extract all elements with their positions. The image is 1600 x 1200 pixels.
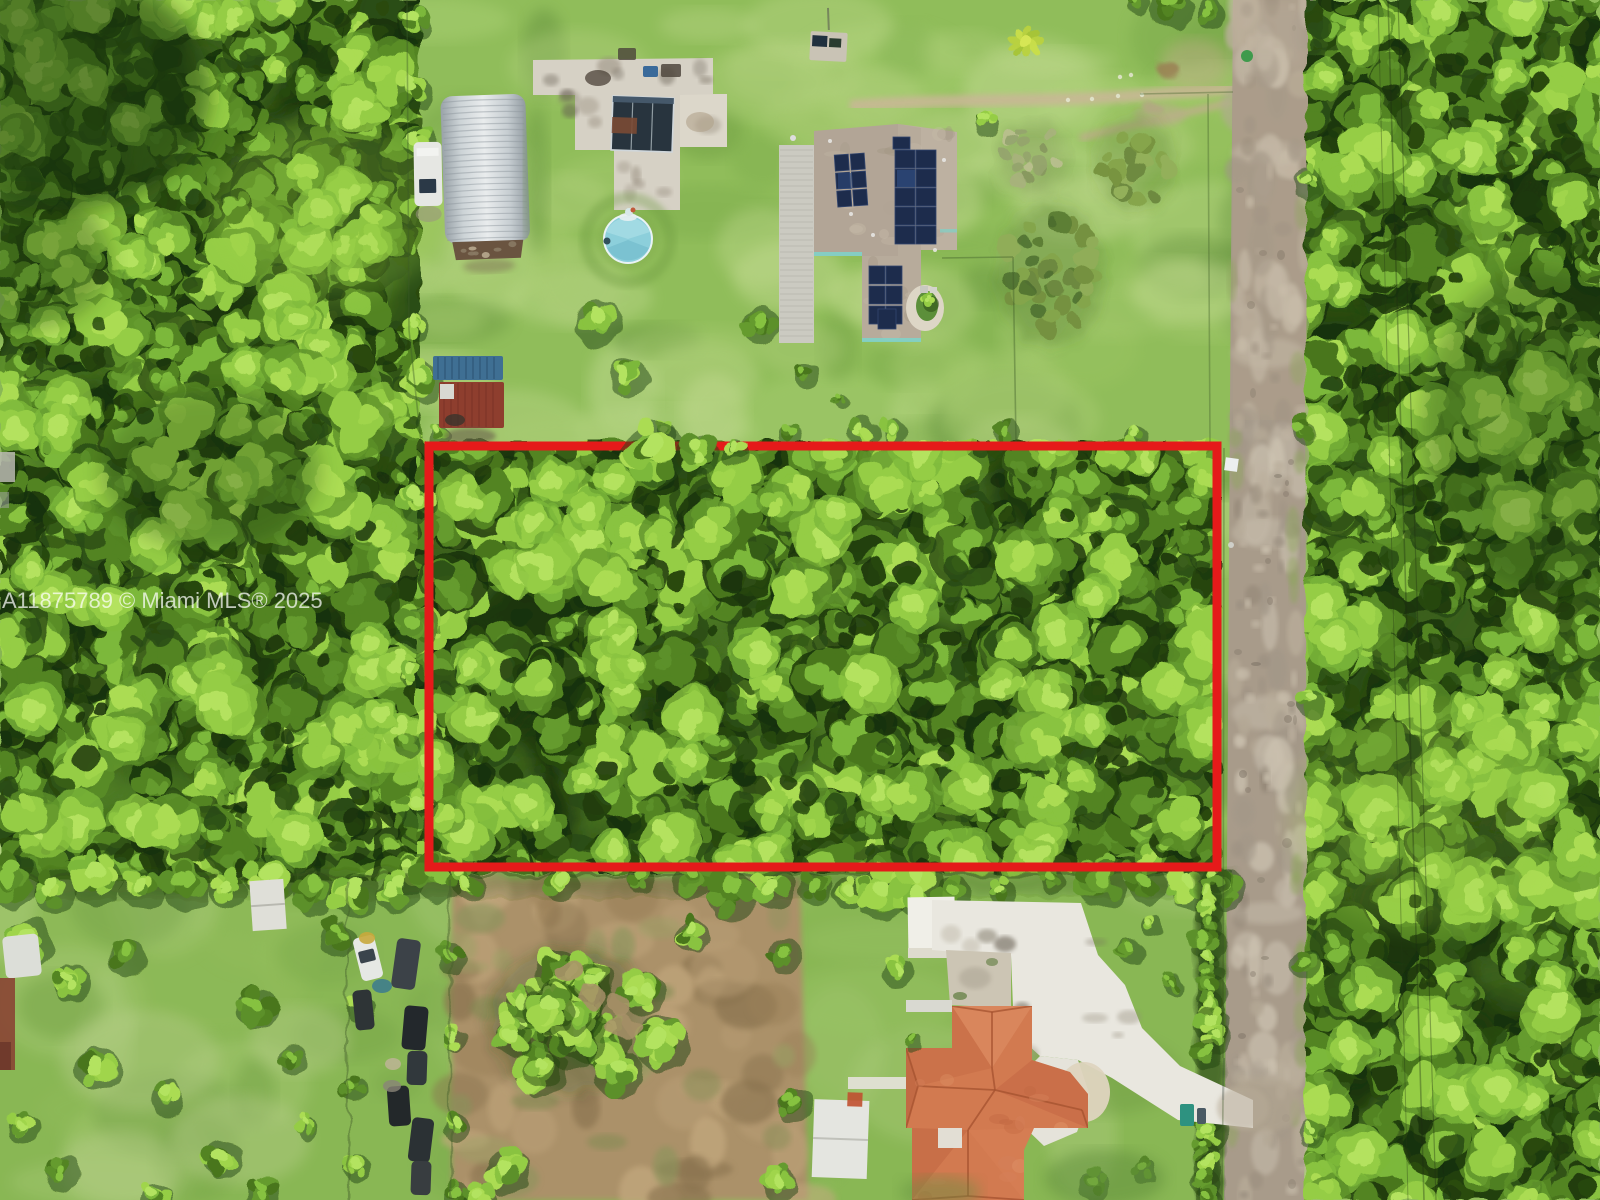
- svg-text:A11875789 © Miami MLS® 2025: A11875789 © Miami MLS® 2025: [2, 588, 323, 613]
